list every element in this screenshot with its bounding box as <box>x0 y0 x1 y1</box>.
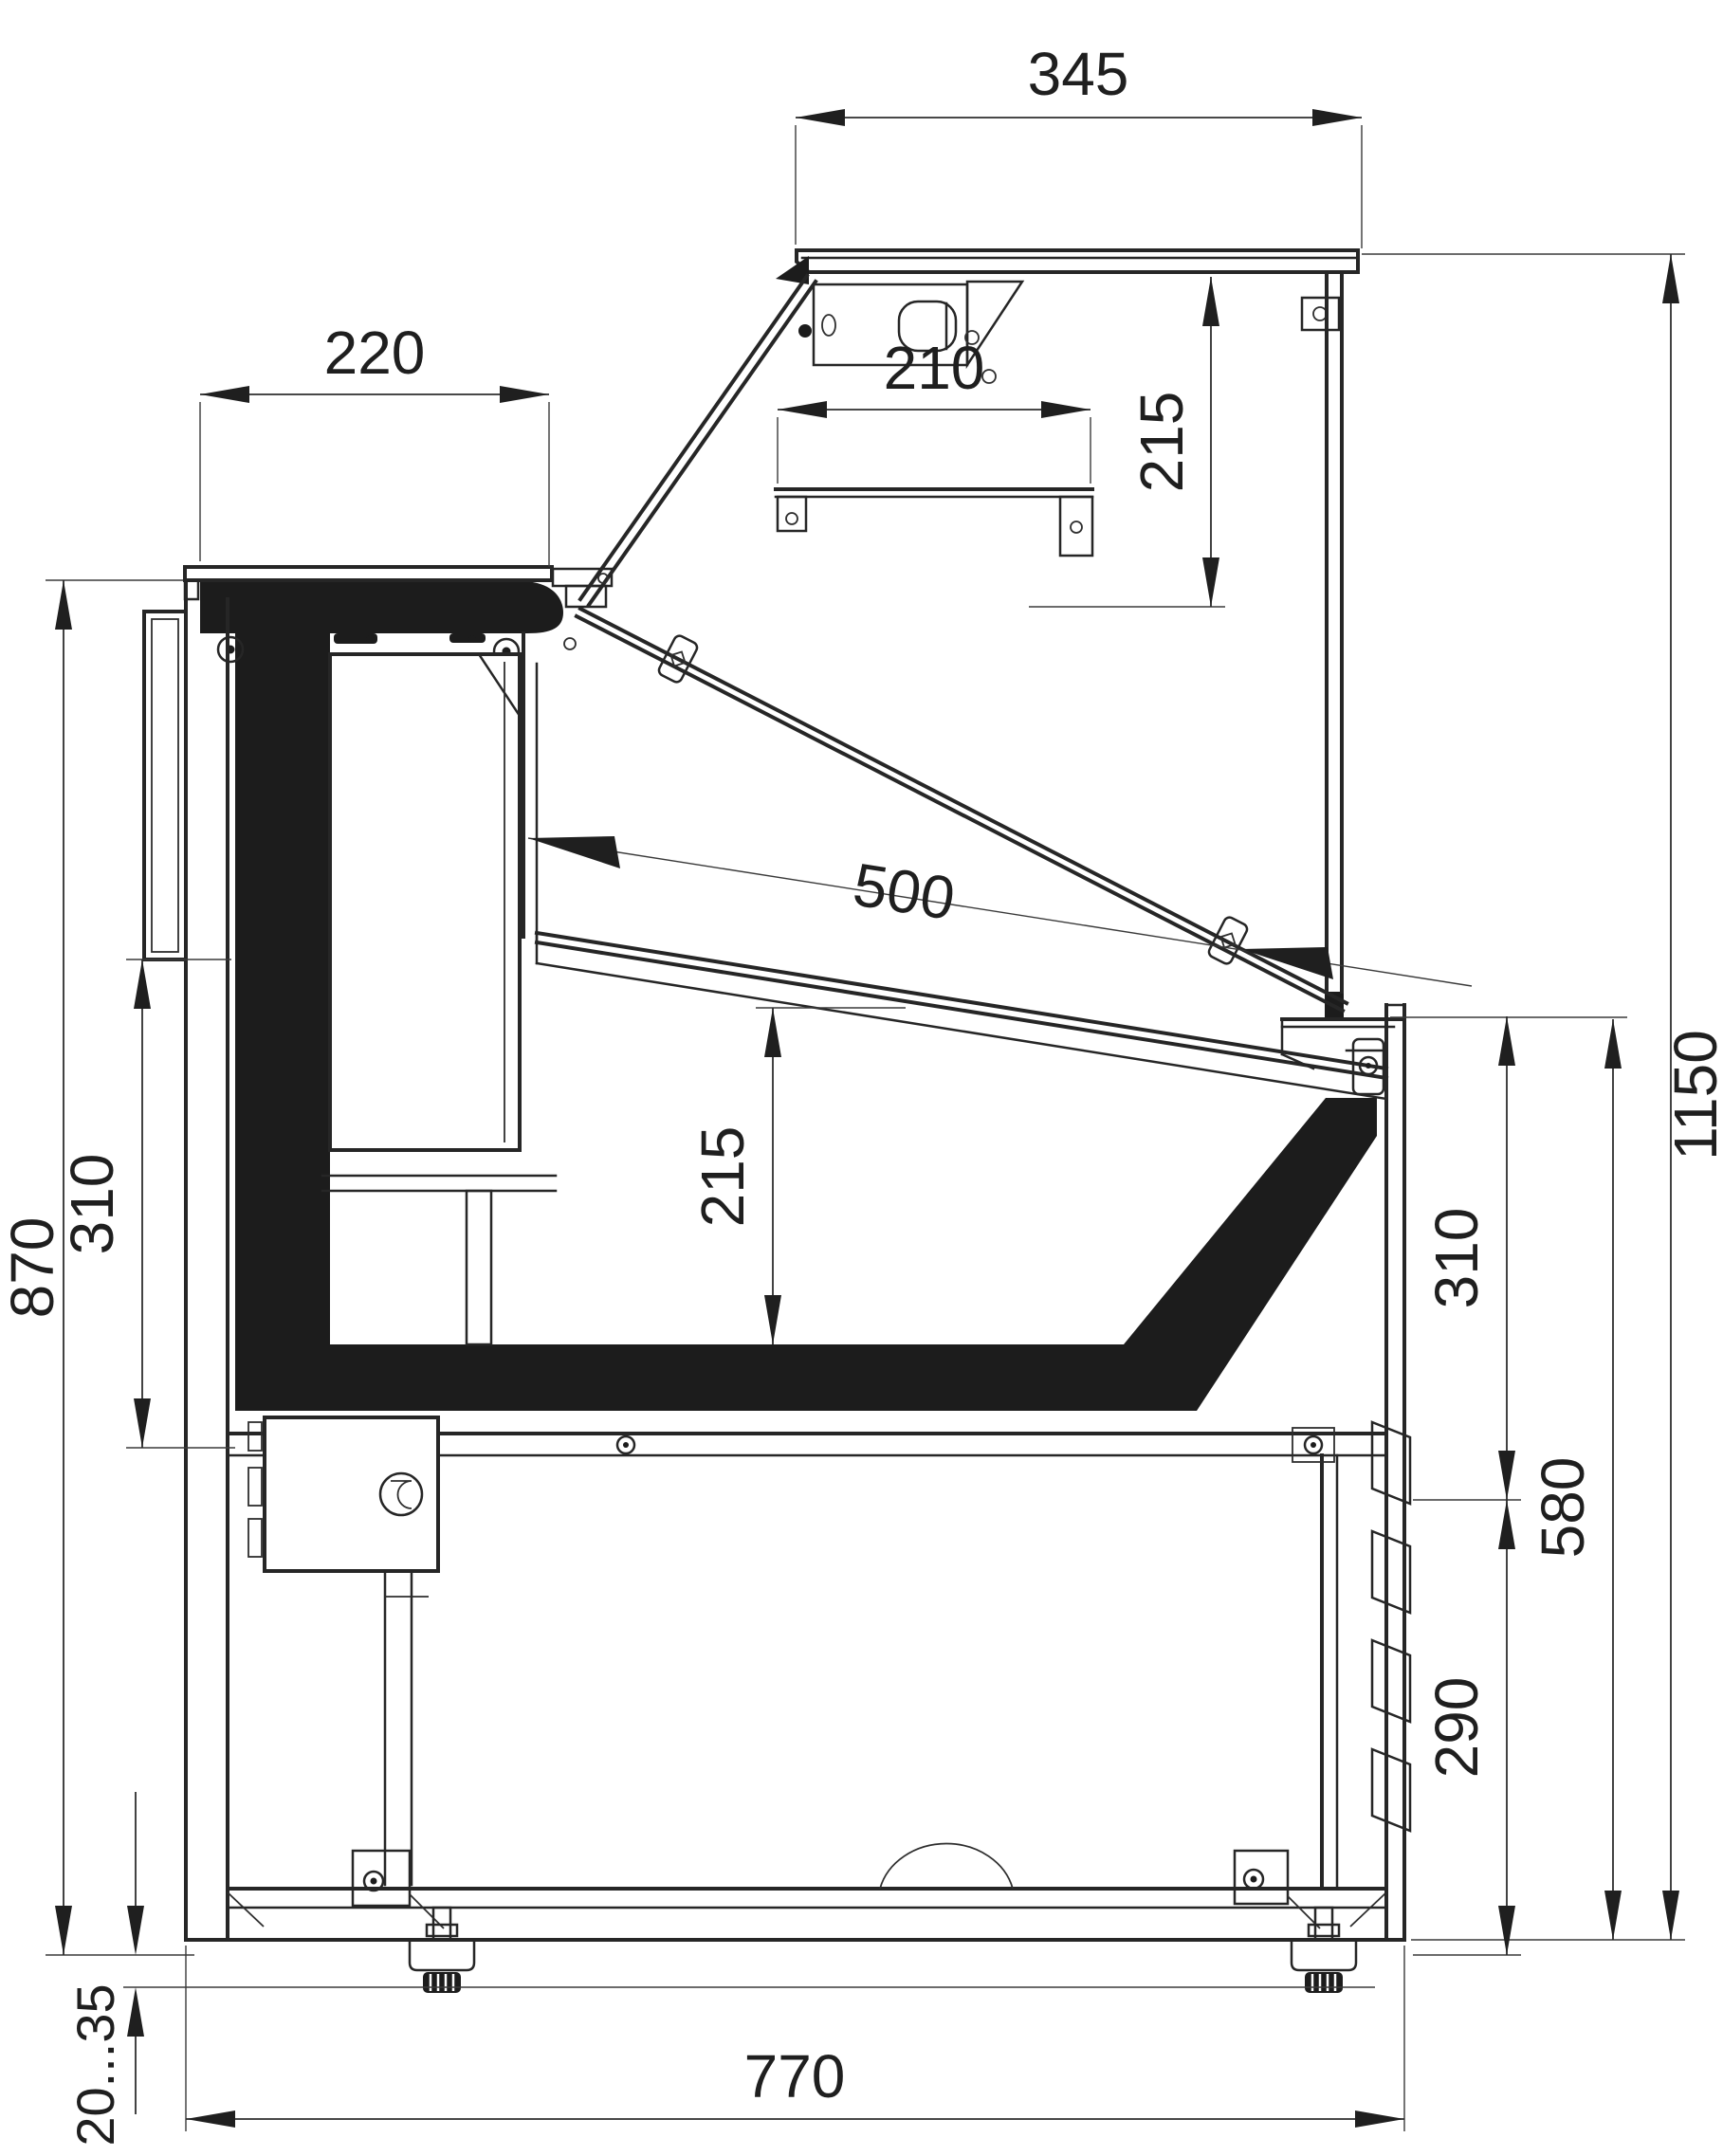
dim-feet-range: 20...35 <box>65 1792 1375 2147</box>
dim-label-210: 210 <box>884 334 985 402</box>
dim-back-upper: 310 <box>1390 1016 1627 1500</box>
front-decor-panel <box>144 612 186 959</box>
dim-label-1150: 1150 <box>1661 1030 1723 1160</box>
drawing-page: 345 215 220 210 <box>0 0 1723 2156</box>
dim-label-580: 580 <box>1529 1457 1597 1559</box>
rear-insulation-diagonal <box>1124 1098 1377 1411</box>
dim-label-215-top: 215 <box>1127 392 1196 493</box>
drain-pipe <box>467 1191 491 1344</box>
glass-hinge-pivot <box>798 324 812 338</box>
dim-front-panel-height: 310 <box>58 959 235 1448</box>
dim-canopy-depth: 345 <box>796 40 1362 248</box>
adjustable-foot-rear <box>1235 1851 1371 1993</box>
dim-label-310-right: 310 <box>1422 1208 1491 1309</box>
front-insulation-column <box>235 631 330 1346</box>
counter-cross-section-drawing: 345 215 220 210 <box>0 0 1723 2156</box>
drain-arc <box>880 1844 1013 1889</box>
dim-canopy-to-shelf: 215 <box>1029 277 1225 607</box>
dim-label-310-left: 310 <box>58 1154 126 1255</box>
dim-label-870: 870 <box>0 1217 66 1319</box>
dim-label-290: 290 <box>1422 1677 1491 1779</box>
dim-shelf-depth: 210 <box>778 334 1091 484</box>
dim-label-220: 220 <box>324 319 426 387</box>
dim-label-feet: 20...35 <box>65 1983 125 2146</box>
dim-counter-height: 870 <box>0 580 194 1955</box>
dim-label-500: 500 <box>849 850 960 933</box>
canopy-shelf <box>776 489 1092 556</box>
dim-back-vent: 290 <box>1413 1500 1521 1955</box>
adjustable-foot-front <box>353 1851 489 1993</box>
dim-total-height: 1150 <box>1362 254 1723 1940</box>
dim-label-770: 770 <box>744 2042 846 2110</box>
dim-back-mid: 580 <box>1529 1019 1622 1940</box>
well-bottom-insulation <box>235 1344 1124 1411</box>
front-glass <box>553 276 816 607</box>
dim-label-345: 345 <box>1028 40 1129 108</box>
canopy <box>776 250 1358 330</box>
dim-label-215-mid: 215 <box>688 1126 757 1228</box>
dim-well-depth: 215 <box>688 1008 906 1344</box>
canopy-bracket <box>1302 298 1339 330</box>
dim-worktop-depth: 220 <box>200 319 549 567</box>
back-wall <box>1386 1005 1404 1940</box>
electrical-box <box>248 1417 438 1885</box>
front-wall <box>186 580 228 1940</box>
dim-body-depth: 770 <box>186 1946 1404 2131</box>
inner-glass <box>577 609 1347 1011</box>
bracket-hole <box>1313 307 1327 320</box>
rear-glass-panel <box>1327 272 1342 992</box>
evaporator-housing <box>322 633 556 1344</box>
